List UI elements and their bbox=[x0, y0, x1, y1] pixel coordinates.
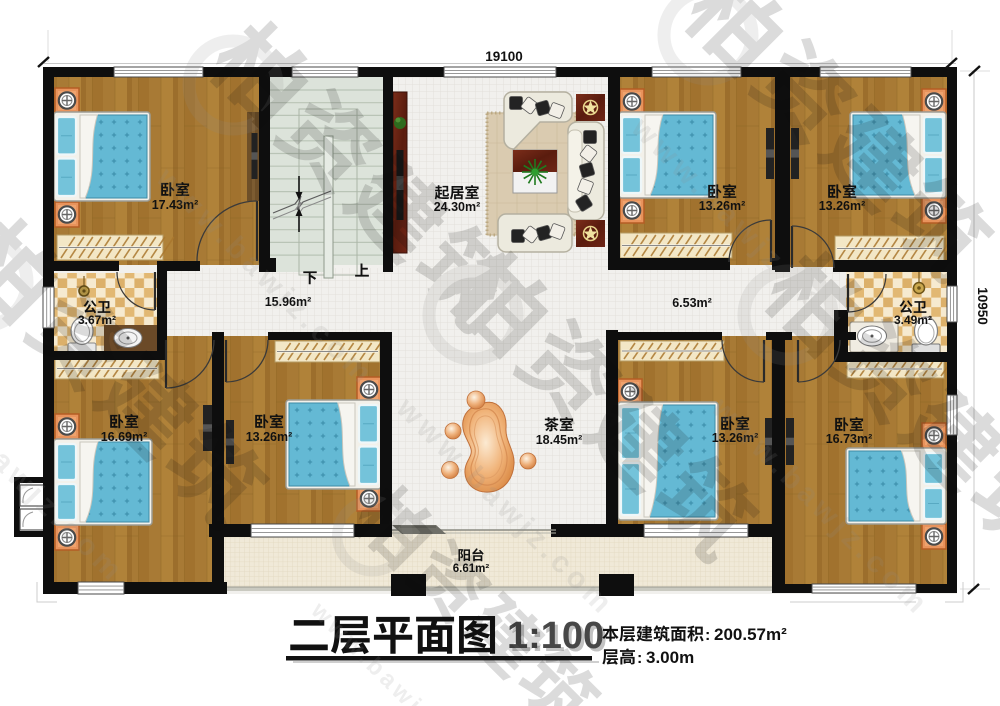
svg-text:6.53m²: 6.53m² bbox=[672, 296, 712, 310]
svg-text:18.45m²: 18.45m² bbox=[536, 433, 583, 447]
svg-text:1:100: 1:100 bbox=[507, 615, 604, 657]
svg-text::: : bbox=[705, 627, 710, 644]
svg-text:19100: 19100 bbox=[485, 49, 523, 64]
svg-text:3.00m: 3.00m bbox=[646, 648, 694, 667]
svg-text::: : bbox=[637, 650, 642, 667]
svg-text:13.26m²: 13.26m² bbox=[246, 430, 293, 444]
svg-text:200.57m²: 200.57m² bbox=[714, 625, 787, 644]
svg-text:16.73m²: 16.73m² bbox=[826, 432, 873, 446]
svg-text:3.49m²: 3.49m² bbox=[894, 313, 932, 327]
svg-text:10950: 10950 bbox=[975, 287, 990, 325]
